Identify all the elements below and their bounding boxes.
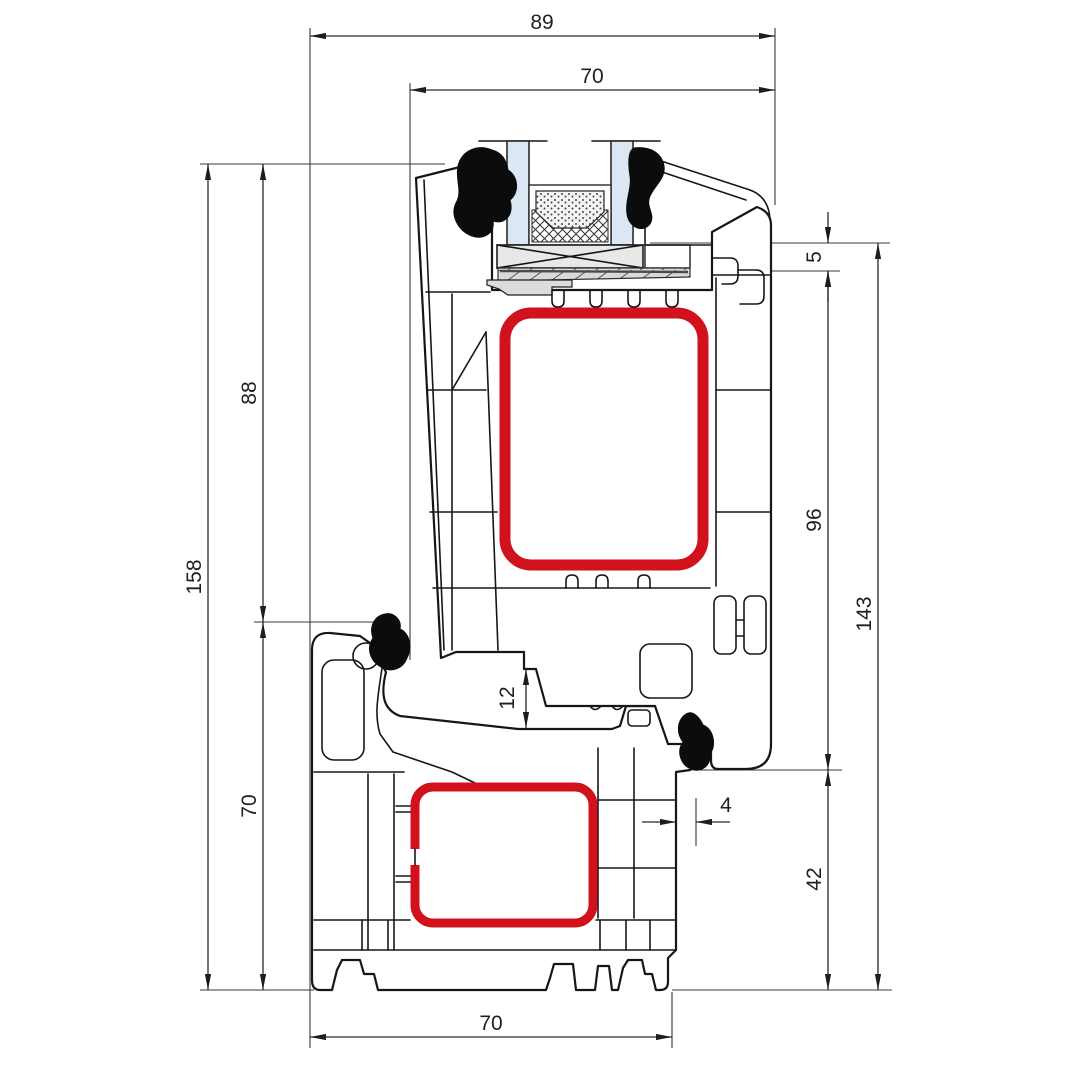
dim-overall-depth: 89 bbox=[310, 11, 775, 36]
steel-gap bbox=[406, 849, 420, 865]
dim-sash-depth: 70 bbox=[410, 65, 775, 90]
packer-shoulder bbox=[645, 245, 690, 268]
dim-right-total: 143 bbox=[853, 243, 878, 990]
dim-rebate-gap: 12 bbox=[496, 669, 526, 728]
dim-label: 70 bbox=[238, 794, 261, 817]
dim-label: 96 bbox=[803, 508, 826, 531]
dim-label: 70 bbox=[580, 65, 603, 88]
dim-frame-depth-bottom: 70 bbox=[310, 1012, 672, 1037]
dim-label: 158 bbox=[183, 559, 206, 594]
dim-overall-height: 158 bbox=[183, 164, 208, 990]
dim-glass-edge-cover: 5 bbox=[803, 212, 828, 302]
dim-label: 143 bbox=[853, 596, 876, 631]
dim-label: 70 bbox=[479, 1012, 502, 1035]
dim-upper-height: 88 bbox=[238, 164, 263, 622]
dim-sash-face-height: 96 bbox=[803, 271, 828, 770]
dim-label: 89 bbox=[530, 11, 553, 34]
window-profile-section-drawing: 89 70 158 88 70 5 96 143 bbox=[0, 0, 1080, 1080]
glazing-gasket-right bbox=[627, 148, 665, 229]
dim-label: 5 bbox=[803, 251, 826, 263]
technical-drawing-page: 89 70 158 88 70 5 96 143 bbox=[0, 0, 1080, 1080]
dim-label: 12 bbox=[496, 686, 519, 709]
bridge-edge bbox=[500, 271, 688, 272]
dim-frame-height-left: 70 bbox=[238, 622, 263, 990]
dim-label: 4 bbox=[720, 794, 732, 817]
dim-lower-right-height: 42 bbox=[803, 770, 828, 990]
overlap-gasket-left bbox=[370, 614, 410, 670]
dim-label: 42 bbox=[803, 867, 826, 890]
dim-label: 88 bbox=[238, 381, 261, 404]
